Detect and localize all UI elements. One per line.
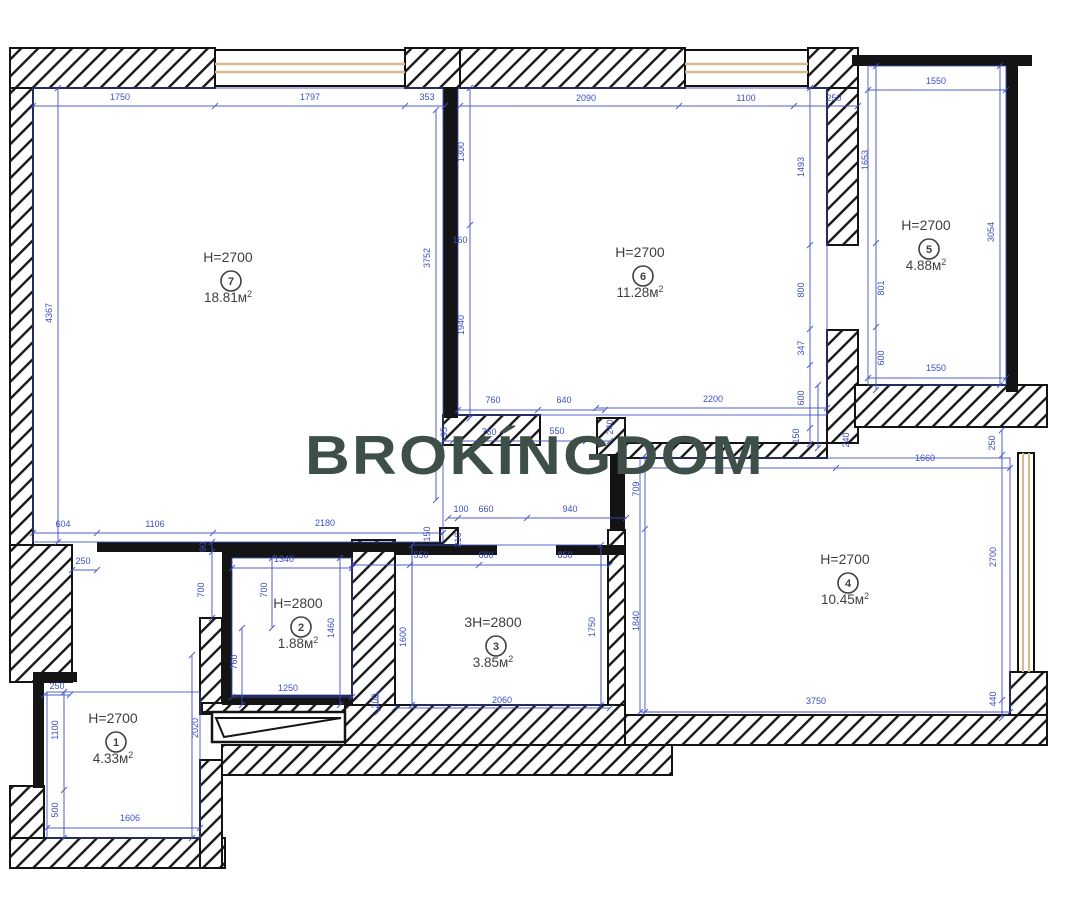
dimension-label: 600 bbox=[876, 350, 886, 365]
dimension-label: 250 bbox=[987, 435, 997, 450]
room-height-label: 3H=2800 bbox=[464, 614, 521, 630]
room-height-label: H=2800 bbox=[273, 595, 323, 611]
dimension-label: 347 bbox=[796, 340, 806, 355]
dimension-label: 1550 bbox=[926, 76, 946, 86]
dimension-label: 660 bbox=[478, 504, 493, 514]
dimension-label: 2200 bbox=[703, 394, 723, 404]
dimension-label: 3054 bbox=[986, 222, 996, 242]
dimension-label: 250 bbox=[75, 556, 90, 566]
wall-segment bbox=[1006, 55, 1018, 392]
dimension-label: 1750 bbox=[587, 617, 597, 637]
dimension-label: 604 bbox=[55, 519, 70, 529]
wall-segment bbox=[200, 618, 222, 714]
room-number: 2 bbox=[298, 622, 304, 634]
wall-segment bbox=[827, 330, 858, 443]
floorplan-page: 1750179735320901100250155043673752130016… bbox=[0, 0, 1069, 917]
dimension-label: 1797 bbox=[300, 92, 320, 102]
room-label-2: H=280021.88м2 bbox=[273, 595, 323, 651]
dimension-label: 2060 bbox=[492, 695, 512, 705]
room-number: 1 bbox=[113, 737, 119, 749]
dimension-label: 800 bbox=[796, 282, 806, 297]
room-height-label: H=2700 bbox=[615, 244, 665, 260]
dimension-label: 600 bbox=[796, 390, 806, 405]
dimension-label: 150 bbox=[791, 428, 801, 443]
dimension-label: 550 bbox=[413, 550, 428, 560]
dimension-label: 1460 bbox=[326, 618, 336, 638]
wall-segment bbox=[200, 760, 222, 868]
dimension-label: 250 bbox=[49, 681, 64, 691]
room-area-label: 4.88м2 bbox=[906, 257, 947, 273]
dimension-label: 250 bbox=[826, 93, 841, 103]
room-label-7: H=2700718.81м2 bbox=[203, 249, 253, 305]
wall-segment bbox=[10, 838, 225, 868]
room-number: 5 bbox=[926, 244, 932, 256]
room-area-label: 11.28м2 bbox=[616, 284, 663, 300]
room-label-6: H=2700611.28м2 bbox=[615, 244, 665, 300]
wall-segment bbox=[405, 48, 460, 88]
wall-segment bbox=[852, 55, 1032, 66]
dimension-label: 1340 bbox=[274, 554, 294, 564]
dimension-label: 90 bbox=[198, 542, 208, 552]
room-number: 4 bbox=[845, 578, 852, 590]
dimension-label: 760 bbox=[229, 654, 239, 669]
wall-segment bbox=[827, 88, 858, 245]
wall-segment bbox=[10, 545, 72, 682]
room-height-label: H=2700 bbox=[88, 710, 138, 726]
room-label-5: H=270054.88м2 bbox=[901, 217, 951, 273]
dimension-label: 2020 bbox=[190, 718, 200, 738]
dimension-label: 1750 bbox=[110, 92, 130, 102]
dimension-label: 300 bbox=[370, 693, 380, 708]
wall-segment bbox=[345, 705, 625, 745]
dimension-label: 3750 bbox=[806, 696, 826, 706]
dimension-label: 1100 bbox=[50, 720, 60, 739]
dimension-label: 660 bbox=[478, 550, 493, 560]
room-area-label: 1.88м2 bbox=[278, 635, 319, 651]
window-right bbox=[1018, 453, 1034, 672]
room-label-4: H=2700410.45м2 bbox=[820, 551, 870, 607]
window-top-left bbox=[215, 50, 405, 86]
dimension-label: 640 bbox=[556, 395, 571, 405]
dimension-label: 4367 bbox=[44, 303, 54, 323]
dimension-label: 1653 bbox=[860, 150, 870, 170]
dimension-label: 440 bbox=[988, 691, 998, 706]
room-label-1: H=270014.33м2 bbox=[88, 710, 138, 766]
room-outline bbox=[640, 458, 1010, 712]
room-number: 3 bbox=[493, 641, 499, 653]
room-height-label: H=2700 bbox=[203, 249, 253, 265]
room-number: 6 bbox=[640, 271, 646, 283]
dimension-label: 240 bbox=[841, 432, 851, 447]
dimension-label: 1840 bbox=[631, 611, 641, 631]
wall-segment bbox=[33, 682, 44, 788]
wall-segment bbox=[222, 548, 232, 705]
room-area-label: 3.85м2 bbox=[473, 654, 514, 670]
room-label-3: 3H=280033.85м2 bbox=[464, 614, 521, 670]
window-top-middle bbox=[685, 50, 808, 86]
room-area-label: 18.81м2 bbox=[204, 289, 252, 305]
dimension-label: 500 bbox=[50, 802, 60, 817]
wall-segment bbox=[222, 745, 672, 775]
dimension-label: 210 bbox=[453, 532, 463, 547]
dimension-label: 801 bbox=[876, 280, 886, 295]
wall-segment bbox=[620, 715, 1047, 745]
watermark: BROKÍNGDOM bbox=[305, 424, 765, 486]
dimension-label: 150 bbox=[422, 526, 432, 541]
wall-segment bbox=[855, 385, 1047, 427]
room-area-label: 10.45м2 bbox=[821, 591, 869, 607]
dimension-label: 2180 bbox=[315, 518, 335, 528]
dimension-label: 100 bbox=[453, 504, 468, 514]
dimension-label: 1493 bbox=[796, 157, 806, 177]
wall-segment bbox=[608, 530, 625, 708]
dimension-label: 1660 bbox=[915, 453, 935, 463]
dimension-label: 3752 bbox=[422, 248, 432, 268]
wall-segment bbox=[10, 88, 33, 545]
dimension-label: 1100 bbox=[736, 93, 755, 103]
room-number: 7 bbox=[228, 276, 234, 288]
floorplan-canvas: 1750179735320901100250155043673752130016… bbox=[0, 0, 1069, 917]
wall-segment bbox=[808, 48, 858, 88]
vent-symbol bbox=[212, 712, 345, 742]
dimension-label: 760 bbox=[485, 395, 500, 405]
wall-segment bbox=[10, 48, 215, 88]
wall-segment bbox=[460, 48, 685, 88]
room-height-label: H=2700 bbox=[820, 551, 870, 567]
room-area-label: 4.33м2 bbox=[93, 750, 134, 766]
dimension-label: 1250 bbox=[278, 683, 298, 693]
dimension-label: 1300 bbox=[456, 142, 466, 162]
dimension-label: 1600 bbox=[398, 627, 408, 647]
dimension-label: 1940 bbox=[456, 315, 466, 335]
dimension-label: 1606 bbox=[120, 813, 140, 823]
dimension-label: 940 bbox=[562, 504, 577, 514]
room-height-label: H=2700 bbox=[901, 217, 951, 233]
dimension-label: 700 bbox=[196, 582, 206, 597]
dimension-label: 850 bbox=[557, 550, 572, 560]
dimension-label: 353 bbox=[419, 92, 434, 102]
dimension-label: 1106 bbox=[145, 519, 164, 529]
dimension-label: 1550 bbox=[926, 363, 946, 373]
dimension-label: 2090 bbox=[576, 93, 596, 103]
dimension-label: 2700 bbox=[988, 547, 998, 567]
dimension-label: 160 bbox=[452, 235, 467, 245]
wall-segment bbox=[443, 88, 458, 418]
dimension-label: 700 bbox=[259, 582, 269, 597]
